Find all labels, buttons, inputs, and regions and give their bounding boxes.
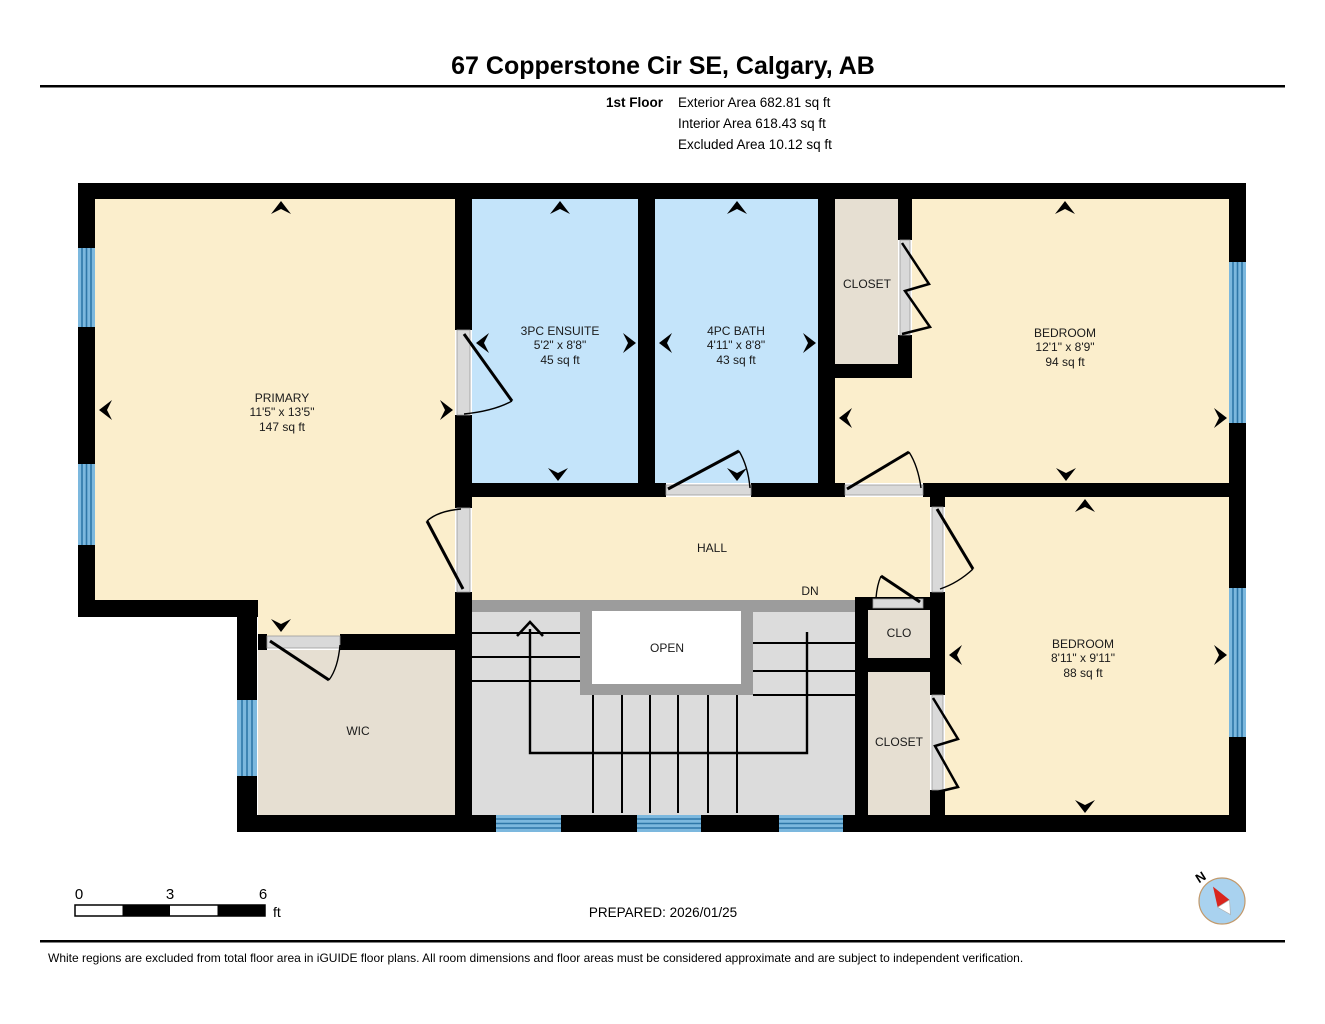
page-title: 67 Copperstone Cir SE, Calgary, AB xyxy=(451,52,875,80)
bedroom-bottom-door-threshold xyxy=(932,507,943,592)
bedroom-bottom-dims: 8'11" x 9'11" xyxy=(1051,651,1115,665)
exterior-area: Exterior Area 682.81 sq ft xyxy=(678,95,831,110)
footer-divider xyxy=(40,940,1285,943)
bath-dims: 4'11" x 8'8" xyxy=(707,338,765,352)
scale-unit: ft xyxy=(273,904,281,920)
bath-door-threshold xyxy=(666,485,751,495)
primary-dims: 11'5" x 13'5" xyxy=(250,405,315,419)
ensuite-area: 45 sq ft xyxy=(540,353,580,367)
scale-tick-3: 3 xyxy=(166,886,174,903)
scale-tick-0: 0 xyxy=(75,886,83,903)
staircase xyxy=(472,600,855,815)
scale-bar-segment xyxy=(123,905,171,916)
closet-bottom-door-threshold xyxy=(932,695,943,790)
bedroom-top-label: BEDROOM xyxy=(1034,326,1096,340)
scale-bar-segment xyxy=(218,905,266,916)
bedroom-bottom-window xyxy=(1229,588,1246,737)
prepared-date: PREPARED: 2026/01/25 xyxy=(589,905,737,920)
stairwell-window-1 xyxy=(496,815,561,832)
stairs-down-label: DN xyxy=(801,584,818,598)
bedroom-top-door-threshold xyxy=(845,485,923,495)
interior-area: Interior Area 618.43 sq ft xyxy=(678,116,826,131)
ensuite-door-threshold xyxy=(457,330,470,415)
primary-label: PRIMARY xyxy=(255,391,309,405)
footer: White regions are excluded from total fl… xyxy=(40,940,1285,965)
stairwell-open-label: OPEN xyxy=(650,641,684,655)
primary-area: 147 sq ft xyxy=(259,420,306,434)
header-divider xyxy=(40,85,1285,88)
compass: N xyxy=(1193,868,1245,924)
scale-tick-6: 6 xyxy=(259,886,267,903)
bedroom-top-room-ext xyxy=(835,378,912,483)
header: 67 Copperstone Cir SE, Calgary, AB 1st F… xyxy=(40,52,1285,152)
bedroom-top-area: 94 sq ft xyxy=(1045,355,1085,369)
stairwell-window-3 xyxy=(779,815,843,832)
ensuite-dims: 5'2" x 8'8" xyxy=(534,338,586,352)
bath-area: 43 sq ft xyxy=(716,353,756,367)
clo-label: CLO xyxy=(887,626,912,640)
primary-window-1 xyxy=(78,248,95,327)
wic-label: WIC xyxy=(346,724,370,738)
floor-plan-page: 67 Copperstone Cir SE, Calgary, AB 1st F… xyxy=(0,0,1325,1024)
bedroom-top-window xyxy=(1229,262,1246,423)
stairwell-window-2 xyxy=(637,815,701,832)
compass-north-label: N xyxy=(1193,868,1209,886)
bedroom-top-dims: 12'1" x 8'9" xyxy=(1035,340,1094,354)
bedroom-bottom-label: BEDROOM xyxy=(1052,637,1114,651)
primary-window-2 xyxy=(78,464,95,545)
scale-bar: 0 3 6 ft xyxy=(75,886,281,920)
closet-top-label: CLOSET xyxy=(843,277,892,291)
excluded-area: Excluded Area 10.12 sq ft xyxy=(678,137,832,152)
footer-disclaimer: White regions are excluded from total fl… xyxy=(48,951,1023,965)
bedroom-bottom-area: 88 sq ft xyxy=(1063,666,1103,680)
floor-label: 1st Floor xyxy=(606,95,664,110)
wic-window xyxy=(237,700,257,776)
closet-bottom-label: CLOSET xyxy=(875,735,924,749)
ensuite-label: 3PC ENSUITE xyxy=(521,324,600,338)
bath-label: 4PC BATH xyxy=(707,324,765,338)
hall-label: HALL xyxy=(697,541,727,555)
